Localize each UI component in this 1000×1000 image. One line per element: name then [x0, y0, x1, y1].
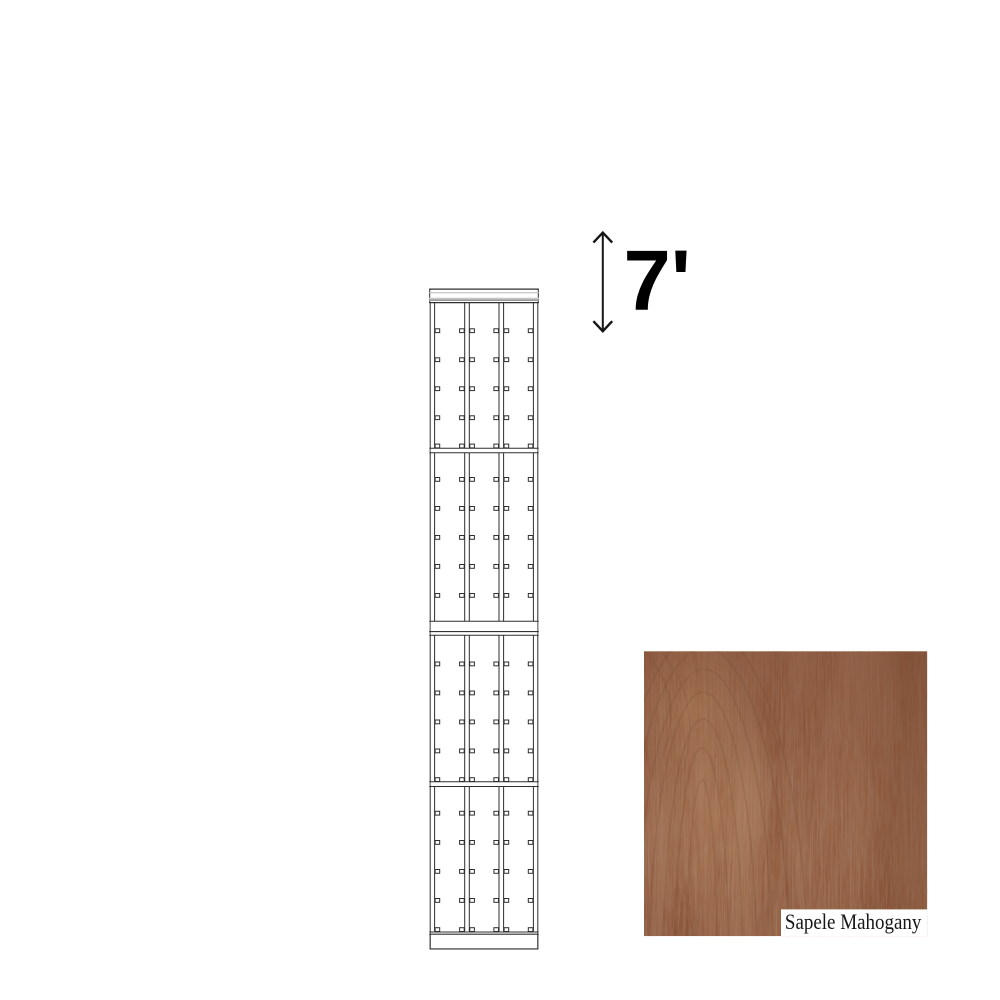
svg-text:7': 7': [624, 234, 692, 329]
svg-text:Sapele Mahogany: Sapele Mahogany: [785, 909, 922, 934]
